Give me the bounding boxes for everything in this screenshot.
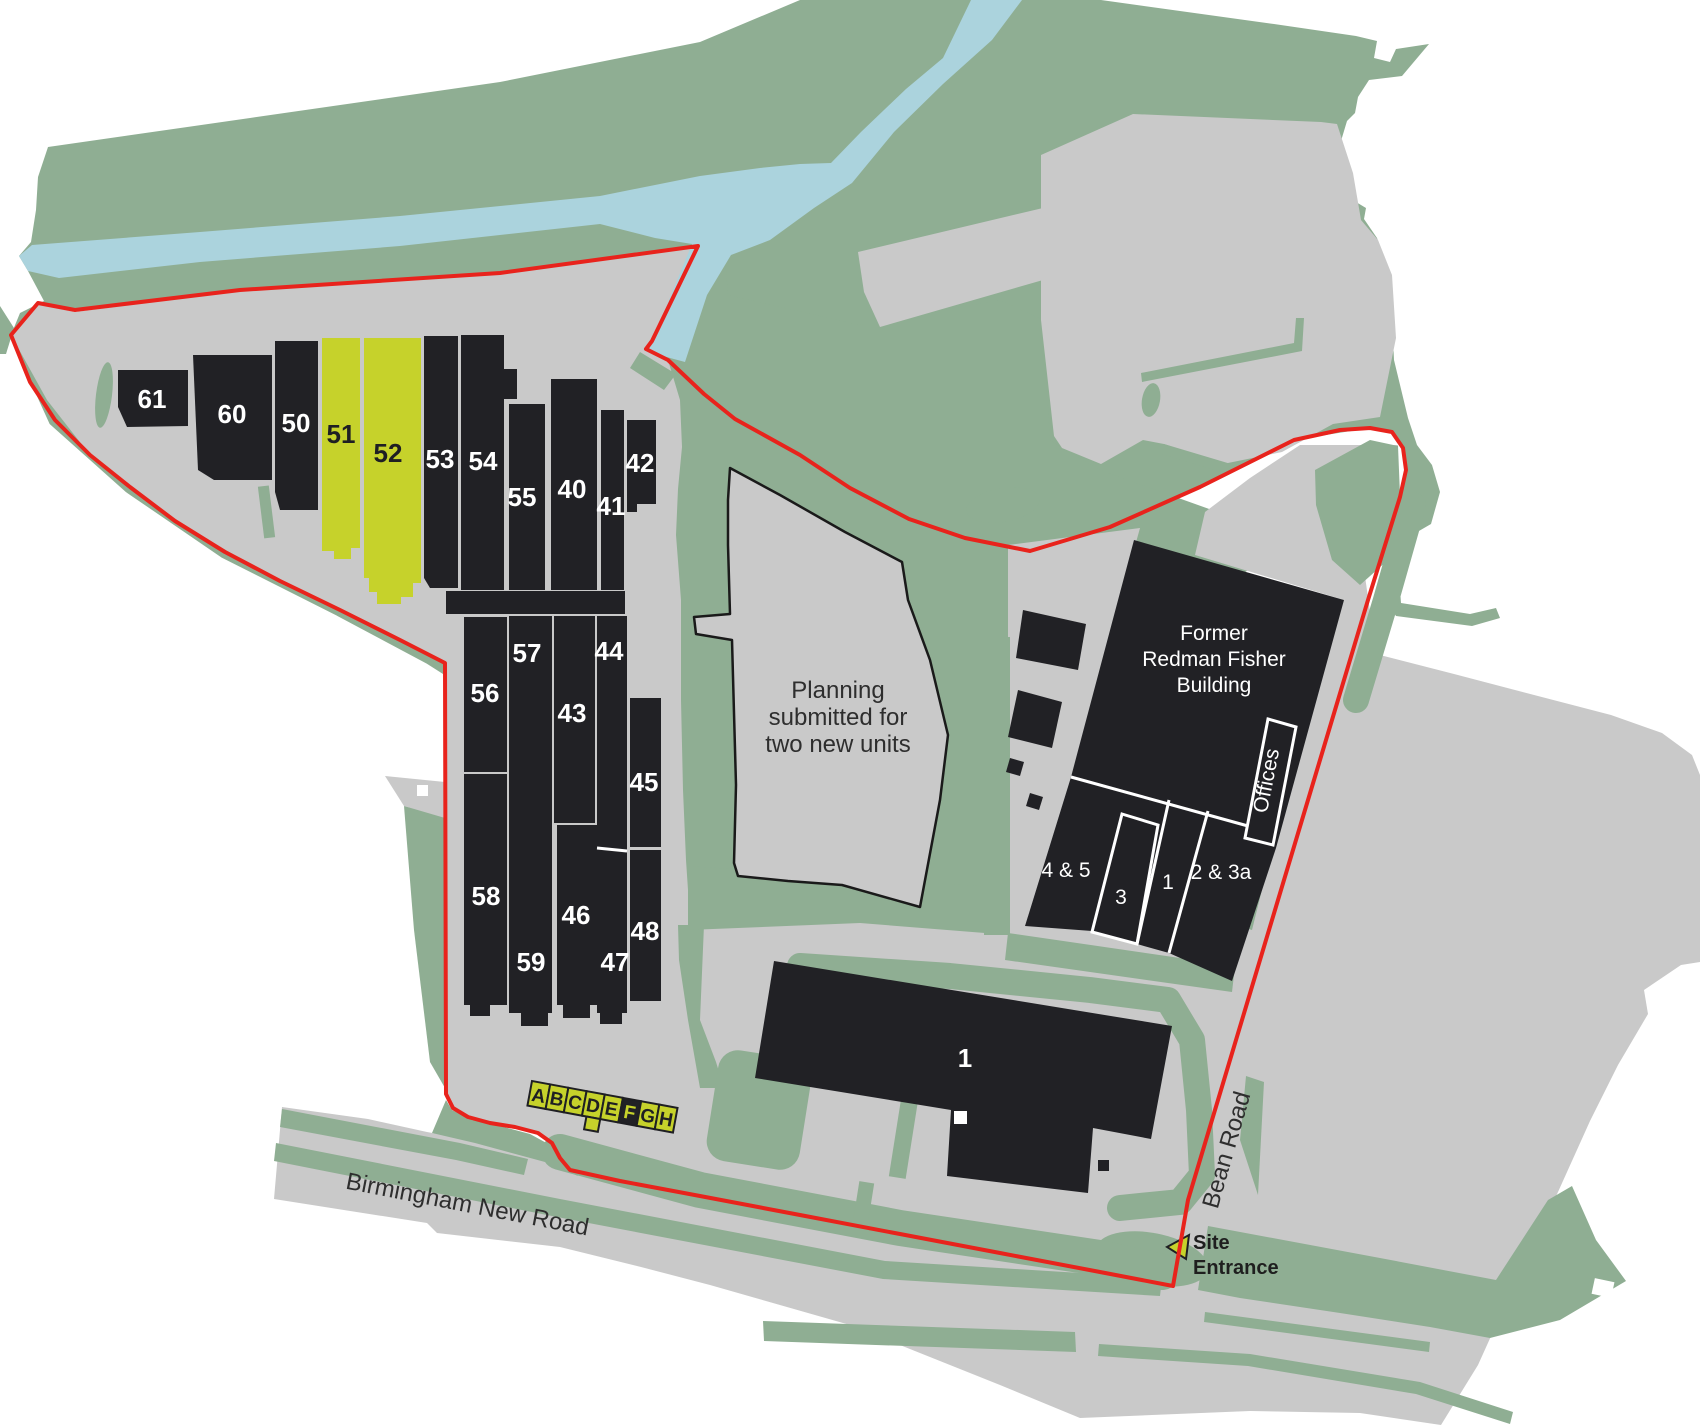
svg-text:Entrance: Entrance <box>1193 1257 1279 1279</box>
svg-text:Building: Building <box>1177 674 1252 697</box>
svg-text:55: 55 <box>508 482 537 512</box>
svg-text:3: 3 <box>1115 886 1127 909</box>
svg-text:45: 45 <box>630 767 659 797</box>
svg-text:53: 53 <box>426 444 455 474</box>
svg-text:59: 59 <box>517 947 546 977</box>
svg-text:51: 51 <box>327 419 356 449</box>
svg-text:60: 60 <box>218 399 247 429</box>
svg-text:4 & 5: 4 & 5 <box>1041 859 1090 882</box>
svg-text:47: 47 <box>601 947 630 977</box>
svg-text:52: 52 <box>374 438 403 468</box>
svg-text:61: 61 <box>138 384 167 414</box>
svg-text:submitted for: submitted for <box>769 704 908 731</box>
svg-text:54: 54 <box>469 446 498 476</box>
svg-text:43: 43 <box>558 698 587 728</box>
svg-text:Planning: Planning <box>791 677 884 704</box>
svg-text:Former: Former <box>1180 622 1248 645</box>
svg-text:50: 50 <box>282 408 311 438</box>
svg-text:41: 41 <box>597 491 626 521</box>
svg-text:46: 46 <box>562 900 591 930</box>
svg-text:48: 48 <box>631 916 660 946</box>
svg-text:1: 1 <box>1162 871 1174 894</box>
svg-text:42: 42 <box>626 448 655 478</box>
svg-text:56: 56 <box>471 678 500 708</box>
svg-text:Redman Fisher: Redman Fisher <box>1142 648 1286 671</box>
svg-text:44: 44 <box>595 636 624 666</box>
svg-text:57: 57 <box>513 638 542 668</box>
svg-text:40: 40 <box>558 474 587 504</box>
svg-text:1: 1 <box>958 1043 972 1073</box>
svg-text:58: 58 <box>472 881 501 911</box>
svg-text:Site: Site <box>1193 1232 1230 1254</box>
svg-text:2 & 3a: 2 & 3a <box>1191 861 1252 884</box>
svg-text:two new units: two new units <box>765 731 910 758</box>
